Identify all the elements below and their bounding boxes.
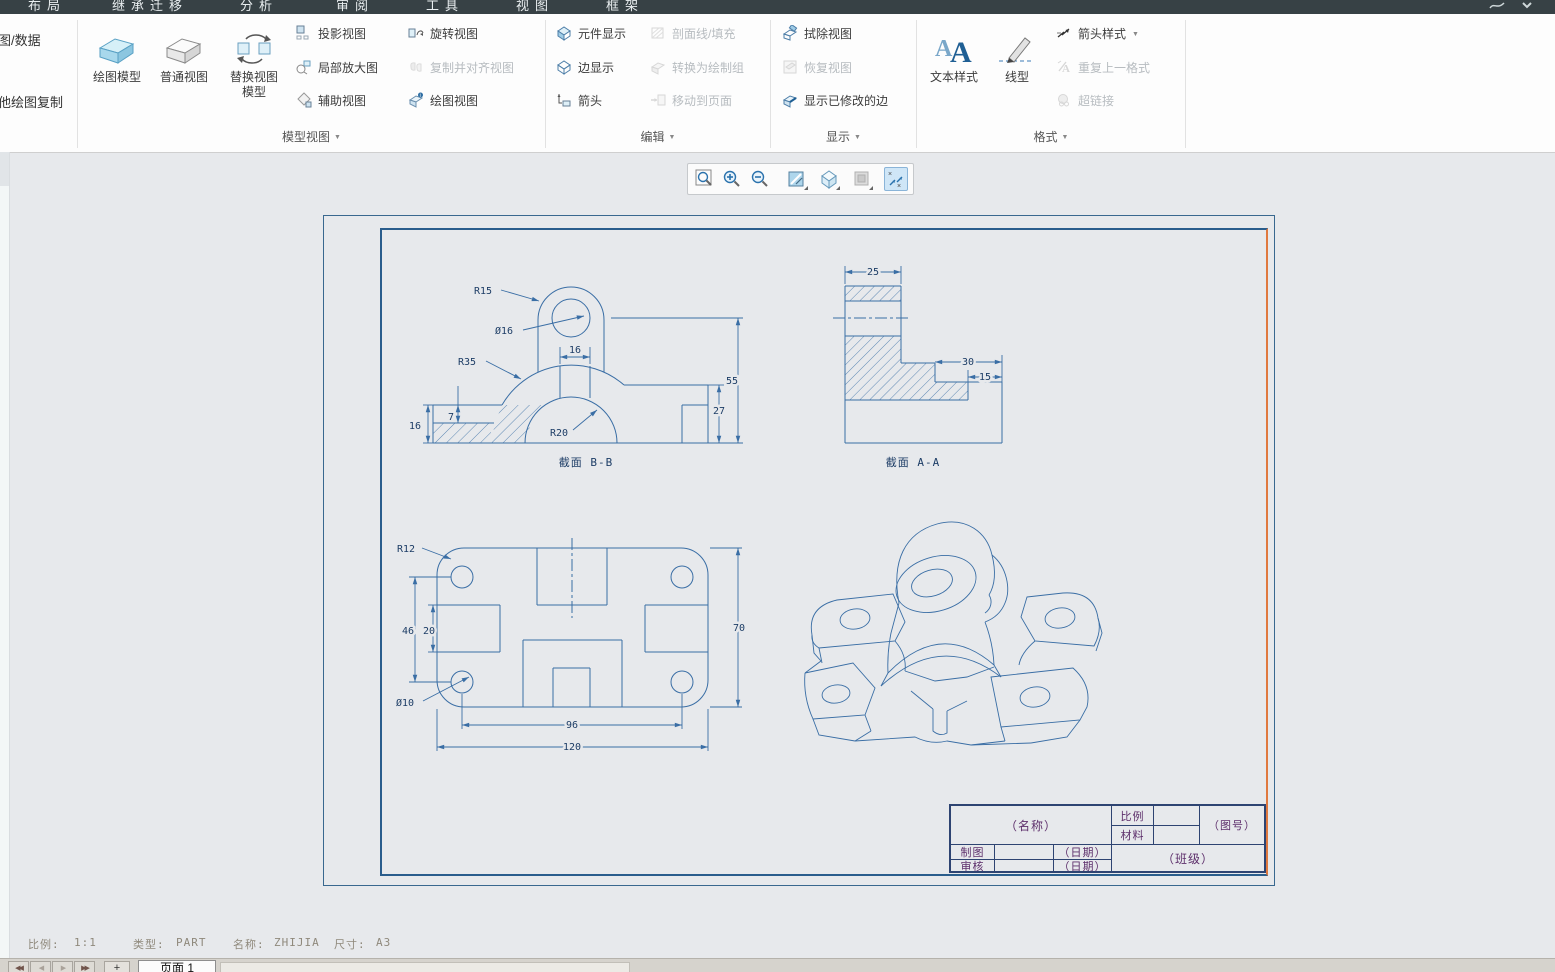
add-sheet-button[interactable]: + [104, 961, 130, 972]
hatch-fill-icon [650, 25, 666, 41]
convert-to-draft-group-icon [650, 59, 666, 75]
arrow-style-icon [1056, 25, 1072, 41]
dim-text[interactable]: R35 [458, 357, 476, 368]
scale-label: 比例: [28, 936, 60, 952]
import-drawing-data-button[interactable]: 图/数据 [0, 30, 41, 49]
section-aa-view[interactable]: 25 30 15 截面 A-A [833, 258, 1023, 478]
detail-view-button[interactable]: 局部放大图 [296, 56, 378, 78]
dim-text[interactable]: 25 [867, 267, 879, 278]
dim-text[interactable]: Ø16 [495, 325, 513, 337]
previous-sheet-button[interactable]: ◀ [30, 961, 51, 972]
convert-to-draft-group-button[interactable]: 转换为绘制组 [650, 56, 744, 78]
next-sheet-button[interactable]: ▶ [52, 961, 73, 972]
dropdown-arrow-icon: ▼ [854, 134, 861, 141]
tab-layout[interactable]: 布局 [28, 0, 66, 14]
zoom-out-button[interactable] [748, 167, 772, 191]
arrow-style-button[interactable]: 箭头样式 ▼ [1056, 22, 1139, 44]
dim-text[interactable]: 27 [713, 406, 725, 417]
type-value: PART [176, 936, 207, 949]
dim-text[interactable]: 96 [566, 720, 578, 731]
dim-text[interactable]: 55 [726, 376, 738, 387]
tab-analysis[interactable]: 分析 [240, 0, 278, 14]
dropdown-corner-icon [836, 186, 840, 190]
svg-text:i: i [420, 93, 421, 99]
date2-cell: （日期） [1054, 860, 1111, 871]
move-to-sheet-button[interactable]: 移动到页面 [650, 89, 732, 111]
class-cell[interactable]: （班级） [1112, 845, 1264, 871]
dim-text[interactable]: 70 [733, 623, 745, 634]
dim-text[interactable]: 120 [563, 742, 581, 753]
projection-view-button[interactable]: 投影视图 [296, 22, 366, 44]
dim-text[interactable]: R15 [474, 286, 492, 297]
size-label: 尺寸: [334, 936, 366, 952]
pen-quick-icon[interactable] [1488, 0, 1506, 14]
size-value: A3 [376, 936, 391, 949]
dim-text[interactable]: R12 [397, 544, 415, 555]
sheet-tab-strip [220, 962, 630, 972]
tab-view[interactable]: 视图 [516, 0, 554, 14]
dim-text[interactable]: 15 [979, 372, 991, 383]
collapse-ribbon-icon[interactable] [1520, 0, 1534, 14]
edge-display-button[interactable]: 边显示 [556, 56, 614, 78]
isometric-view[interactable] [795, 505, 1115, 765]
auxiliary-view-button[interactable]: 辅助视图 [296, 89, 366, 111]
show-modified-edges-icon [782, 92, 798, 108]
arrows-button[interactable]: 箭头 [556, 89, 602, 111]
rotate-view-button[interactable]: 旋转视图 [408, 22, 478, 44]
checker-label-cell: 审核 [951, 860, 994, 871]
tab-legacy-migration[interactable]: 继承迁移 [112, 0, 188, 14]
dim-text[interactable]: 46 [402, 626, 414, 637]
dropdown-corner-icon [869, 186, 873, 190]
group-display[interactable]: 显示 ▼ [771, 126, 916, 146]
view-caption[interactable]: 截面 A-A [886, 455, 941, 469]
replace-view-model-button[interactable]: 替换视图 模型 [220, 18, 288, 100]
tab-tools[interactable]: 工具 [426, 0, 464, 14]
datum-display-button[interactable] [850, 167, 874, 191]
dropdown-arrow-icon: ▼ [1062, 134, 1069, 141]
geometry [437, 538, 708, 707]
dropdown-arrow-icon: ▼ [1132, 31, 1139, 38]
name-label: 名称: [233, 936, 265, 952]
scale-value: 1:1 [74, 936, 97, 949]
line-style-icon [997, 24, 1037, 66]
group-model-views[interactable]: 模型视图 ▼ [78, 126, 545, 146]
section-bb-view[interactable]: R15 Ø16 R35 16 7 16 R20 55 27 截面 B-B [402, 272, 762, 477]
left-panel-edge[interactable] [0, 152, 10, 958]
hyperlink-icon [1056, 92, 1072, 108]
move-to-sheet-icon [650, 92, 666, 108]
zoom-window-button[interactable] [693, 167, 717, 191]
auxiliary-view-icon [296, 92, 312, 108]
erase-view-icon [782, 25, 798, 41]
dropdown-arrow-icon: ▼ [669, 134, 676, 141]
sheet-tab-bar: ◀◀ ◀ ▶ ▶▶ + 页面 1 [0, 958, 1555, 972]
svg-text:×: × [888, 171, 892, 178]
dropdown-arrow-icon: ▼ [334, 134, 341, 141]
geometry [833, 286, 1002, 443]
tab-framework[interactable]: 框架 [606, 0, 644, 14]
first-sheet-button[interactable]: ◀◀ [8, 961, 29, 972]
hatch-fill-button[interactable]: 剖面线/填充 [650, 22, 735, 44]
dim-text[interactable]: R20 [550, 428, 568, 439]
rotate-view-icon [408, 25, 424, 41]
group-format[interactable]: 格式 ▼ [917, 126, 1185, 146]
text-style-icon: A A [933, 24, 975, 66]
group-edit[interactable]: 编辑 ▼ [546, 126, 770, 146]
detail-view-icon [296, 59, 312, 75]
dim-text[interactable]: 7 [448, 412, 454, 423]
copy-align-view-button[interactable]: 复制并对齐视图 [408, 56, 514, 78]
dim-text[interactable]: 16 [569, 345, 581, 356]
type-label: 类型: [133, 936, 165, 952]
hyperlink-button[interactable]: 超链接 [1056, 89, 1114, 111]
material-value-cell[interactable] [1154, 825, 1199, 844]
copy-from-other-drawing-button[interactable]: 他绘图复制 [0, 92, 63, 111]
view-caption[interactable]: 截面 B-B [559, 455, 614, 469]
dim-text[interactable]: 30 [962, 357, 974, 368]
model-display-style-button[interactable] [817, 167, 841, 191]
replace-view-model-icon [232, 24, 276, 66]
projection-view-icon [296, 25, 312, 41]
geometry [805, 522, 1102, 745]
dropdown-corner-icon [804, 186, 808, 190]
resume-view-icon [782, 59, 798, 75]
ribbon-tab-bar: 布局 继承迁移 分析 审阅 工具 视图 框架 [0, 0, 1555, 14]
top-view[interactable]: R12 46 20 Ø10 96 120 70 [392, 528, 762, 758]
text-style-button[interactable]: A A 文本样式 [920, 18, 988, 85]
scale-label-cell: 比例 [1112, 806, 1153, 825]
line-style-button[interactable]: 线型 [992, 18, 1042, 85]
erase-view-button[interactable]: 拭除视图 [782, 22, 852, 44]
title-block[interactable]: （名称） 比例 材料 （图号） 制图 （日期） 审核 （日期） （班级） [949, 804, 1266, 873]
edge-display-icon [556, 59, 572, 75]
drawing-view-icon: i [408, 92, 424, 108]
show-modified-edges-button[interactable]: 显示已修改的边 [782, 89, 888, 111]
repeat-last-format-icon: A [1056, 59, 1072, 75]
arrows-icon [556, 92, 572, 108]
copy-align-view-icon [408, 59, 424, 75]
title-name-cell[interactable]: （名称） [951, 806, 1111, 844]
material-label-cell: 材料 [1112, 825, 1153, 844]
ribbon: 图/数据 他绘图复制 绘图模型 普通视图 [0, 14, 1555, 153]
scale-value-cell[interactable] [1154, 806, 1199, 825]
tab-review[interactable]: 审阅 [336, 0, 374, 14]
name-value: ZHIJIA [274, 936, 320, 949]
drawing-model-icon [97, 24, 137, 66]
sheet-tab-page1[interactable]: 页面 1 [138, 960, 216, 972]
zoom-in-button[interactable] [720, 167, 744, 191]
svg-text:×: × [897, 183, 901, 189]
dim-text[interactable]: 16 [409, 421, 421, 432]
update-sheet-button[interactable] [785, 167, 809, 191]
dim-text[interactable]: Ø10 [396, 697, 414, 709]
repeat-last-format-button[interactable]: A 重复上一格式 [1056, 56, 1150, 78]
group-separator [1185, 20, 1186, 148]
component-display-button[interactable]: 元件显示 [556, 22, 626, 44]
dim-text[interactable]: 20 [423, 626, 435, 637]
drawing-model-button[interactable]: 绘图模型 [86, 18, 148, 85]
drawing-view-button[interactable]: i 绘图视图 [408, 89, 478, 111]
last-sheet-button[interactable]: ▶▶ [74, 961, 95, 972]
svg-text:A: A [950, 36, 972, 66]
drawing-no-cell[interactable]: （图号） [1200, 806, 1264, 844]
resume-view-button[interactable]: 恢复视图 [782, 56, 852, 78]
component-display-icon [556, 25, 572, 41]
general-view-icon [164, 24, 204, 66]
in-canvas-quick-toolbar: × × [687, 163, 914, 195]
general-view-button[interactable]: 普通视图 [152, 18, 216, 85]
annotation-display-button[interactable]: × × [884, 167, 908, 191]
cad-application-window: 布局 继承迁移 分析 审阅 工具 视图 框架 图/数据 他绘图复制 绘图模型 [0, 0, 1555, 972]
